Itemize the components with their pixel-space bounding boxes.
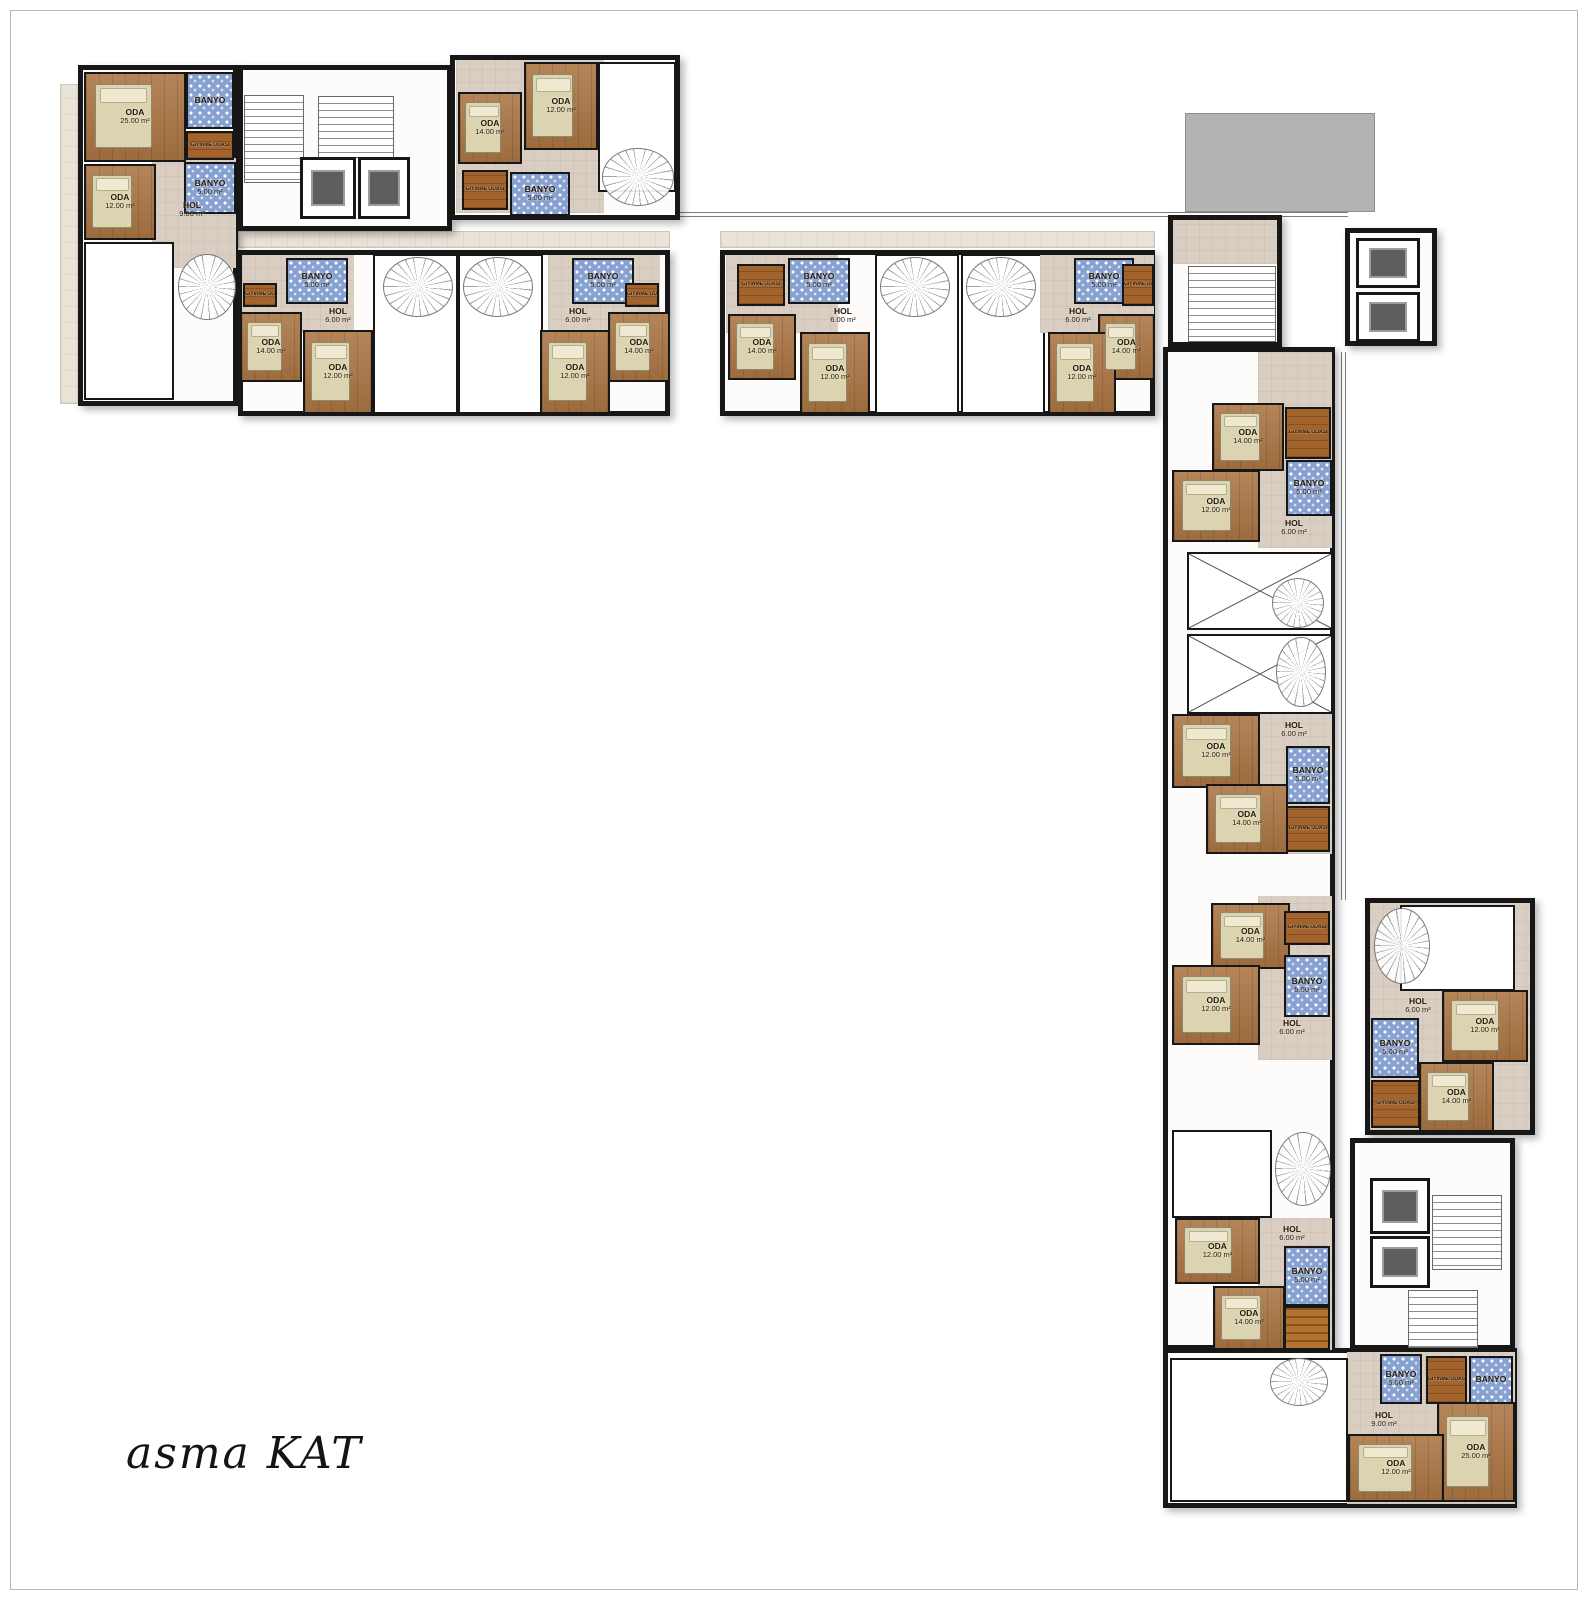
room-banyo: BANYO5.00 m² xyxy=(788,258,850,304)
spiral-stair-icon xyxy=(463,257,533,317)
elevator-car-icon xyxy=(368,170,400,206)
room-label: HOL6.00 m² xyxy=(1388,994,1448,1018)
staircase-icon xyxy=(318,96,394,158)
room-label: BANYO5.00 m² xyxy=(1382,1356,1420,1402)
room-label: BANYO xyxy=(188,74,232,127)
bed-icon xyxy=(311,342,350,402)
room-banyo: BANYO5.00 m² xyxy=(1380,1354,1422,1404)
room-banyo: BANYO5.00 m² xyxy=(510,172,570,216)
spiral-stair-icon xyxy=(1272,578,1324,628)
bed-icon xyxy=(247,322,281,372)
bed-icon xyxy=(1220,413,1260,461)
room-label: BANYO5.00 m² xyxy=(574,260,632,302)
dressing-room: GİYİNME ODASI xyxy=(1285,407,1331,459)
dressing-room: GİYİNME ODASI xyxy=(243,283,277,307)
room-banyo: BANYO5.00 m² xyxy=(1286,746,1330,804)
spiral-stair-icon xyxy=(602,148,674,206)
room-label: HOL6.00 m² xyxy=(813,304,873,328)
room-oda: ODA12.00 m² xyxy=(1172,965,1260,1045)
room-oda: ODA12.00 m² xyxy=(303,330,373,414)
room-oda: ODA12.00 m² xyxy=(524,62,598,150)
bed-icon xyxy=(1182,724,1231,776)
room-oda: ODA14.00 m² xyxy=(1206,784,1288,854)
paving-band-west xyxy=(238,231,670,248)
room-label: BANYO5.00 m² xyxy=(1286,1248,1328,1304)
spiral-stair-icon xyxy=(1374,908,1430,984)
room-oda: ODA12.00 m² xyxy=(1348,1434,1444,1502)
room-label: GİYİNME ODASI xyxy=(739,266,783,304)
room-label: HOL6.00 m² xyxy=(1264,516,1324,540)
terrace-roof xyxy=(1185,113,1375,212)
elevator xyxy=(1370,1236,1430,1288)
bed-icon xyxy=(1427,1072,1469,1122)
room-label: BANYO5.00 m² xyxy=(1373,1020,1417,1076)
room-label: HOL6.00 m² xyxy=(1262,1016,1322,1040)
floor-plan-page: ODA25.00 m²BANYOGİYİNME ODASIBANYO5.00 m… xyxy=(0,0,1588,1600)
staircase-icon xyxy=(1408,1290,1478,1348)
room-oda: ODA12.00 m² xyxy=(800,332,870,414)
room-banyo: BANYO5.00 m² xyxy=(1284,1246,1330,1306)
floor-plan: ODA25.00 m²BANYOGİYİNME ODASIBANYO5.00 m… xyxy=(0,0,1588,1600)
room-oda: ODA12.00 m² xyxy=(1172,470,1260,542)
empty-room xyxy=(84,242,174,400)
dressing-room: GİYİNME ODASI xyxy=(462,170,508,210)
dressing-room: GİYİNME ODASI xyxy=(1286,806,1330,852)
staircase-icon xyxy=(1284,1306,1330,1350)
dressing-room: GİYİNME ODASI xyxy=(186,131,234,160)
room-oda: ODA12.00 m² xyxy=(1175,1218,1260,1284)
room-oda: ODA12.00 m² xyxy=(1172,714,1260,788)
spiral-stair-icon xyxy=(966,257,1036,317)
dressing-room: GİYİNME ODASI xyxy=(625,283,659,307)
room-oda: ODA14.00 m² xyxy=(1211,903,1290,969)
bed-icon xyxy=(615,322,649,372)
room-label: HOL9.00 m² xyxy=(160,198,224,222)
dressing-room: GİYİNME ODASI xyxy=(737,264,785,306)
elevator xyxy=(1356,238,1420,288)
room-banyo: BANYO5.00 m² xyxy=(286,258,348,304)
bed-icon xyxy=(95,84,152,148)
room-label: BANYO xyxy=(1471,1358,1511,1402)
spiral-stair-icon xyxy=(880,257,950,317)
elevator xyxy=(300,157,356,219)
dressing-room: GİYİNME ODASI xyxy=(1284,911,1330,945)
elevator xyxy=(1370,1178,1430,1234)
room-label: GİYİNME ODASI xyxy=(1428,1358,1465,1402)
room-label: HOL6.00 m² xyxy=(1262,1016,1322,1040)
room-banyo: BANYO5.00 m² xyxy=(1371,1018,1419,1078)
room-banyo: BANYO5.00 m² xyxy=(1286,460,1332,516)
bed-icon xyxy=(1056,343,1094,401)
empty-room xyxy=(1172,1130,1272,1218)
room-label: HOL9.00 m² xyxy=(1352,1408,1416,1432)
room-label: HOL6.00 m² xyxy=(548,304,608,328)
room-oda: ODA14.00 m² xyxy=(1212,403,1284,471)
room-label: HOL6.00 m² xyxy=(1264,516,1324,540)
bed-icon xyxy=(1221,1295,1261,1340)
bed-icon xyxy=(1215,794,1261,844)
floor-title: asma KAT xyxy=(126,1428,363,1479)
bed-icon xyxy=(1184,1227,1231,1274)
room-banyo: BANYO xyxy=(1469,1356,1513,1404)
room-label: HOL6.00 m² xyxy=(1262,1222,1322,1246)
bed-icon xyxy=(736,323,774,370)
bed-icon xyxy=(808,343,847,401)
room-label: GİYİNME ODASI xyxy=(1288,808,1328,850)
spiral-stair-icon xyxy=(383,257,453,317)
elevator xyxy=(1356,292,1420,342)
room-label: HOL9.00 m² xyxy=(1352,1408,1416,1432)
spiral-stair-icon xyxy=(1276,637,1326,707)
room-oda: ODA12.00 m² xyxy=(1442,990,1528,1062)
dressing-room: GİYİNME ODASI xyxy=(1426,1356,1467,1404)
room-oda: ODA25.00 m² xyxy=(84,72,186,162)
elevator-car-icon xyxy=(1369,302,1408,332)
room-label: HOL6.00 m² xyxy=(1264,718,1324,742)
room-banyo: BANYO5.00 m² xyxy=(1284,955,1330,1017)
elevator-car-icon xyxy=(311,170,345,206)
room-label: GİYİNME ODASI xyxy=(188,133,232,158)
room-banyo: BANYO xyxy=(186,72,234,129)
dressing-room: GİYİNME ODASI xyxy=(1371,1080,1420,1128)
hall-floor xyxy=(1173,220,1277,264)
room-label: HOL6.00 m² xyxy=(1264,718,1324,742)
bed-icon xyxy=(92,175,132,229)
bed-icon xyxy=(465,102,501,153)
room-label: GİYİNME ODASI xyxy=(464,172,506,208)
elevator-car-icon xyxy=(1369,248,1408,278)
bed-icon xyxy=(1182,976,1231,1033)
room-oda: ODA25.00 m² xyxy=(1437,1402,1515,1502)
bed-icon xyxy=(1358,1444,1412,1492)
room-label: HOL6.00 m² xyxy=(813,304,873,328)
room-label: BANYO5.00 m² xyxy=(512,174,568,214)
room-oda: ODA14.00 m² xyxy=(1213,1286,1285,1350)
room-label: HOL6.00 m² xyxy=(1388,994,1448,1018)
room-oda: ODA12.00 m² xyxy=(84,164,156,240)
room-oda: ODA14.00 m² xyxy=(728,314,796,380)
room-label: HOL9.00 m² xyxy=(160,198,224,222)
room-label: HOL6.00 m² xyxy=(548,304,608,328)
dressing-room: GİYİNME ODASI xyxy=(1122,264,1154,306)
room-label: HOL6.00 m² xyxy=(1262,1222,1322,1246)
elevator-car-icon xyxy=(1382,1190,1418,1223)
bed-icon xyxy=(1182,480,1231,531)
spiral-stair-icon xyxy=(1270,1358,1328,1406)
staircase-icon xyxy=(1188,266,1276,342)
room-label: GİYİNME ODASI xyxy=(627,285,657,305)
room-label: GİYİNME ODASI xyxy=(1124,266,1152,304)
railing-right xyxy=(1341,352,1346,900)
staircase-icon xyxy=(1432,1195,1502,1270)
room-label: BANYO5.00 m² xyxy=(790,260,848,302)
room-label: GİYİNME ODASI xyxy=(1287,409,1329,457)
room-oda: ODA12.00 m² xyxy=(540,330,610,414)
room-label: GİYİNME ODASI xyxy=(245,285,275,305)
room-label: HOL6.00 m² xyxy=(308,304,368,328)
room-oda: ODA14.00 m² xyxy=(1419,1062,1494,1132)
bed-icon xyxy=(1446,1416,1489,1487)
room-label: BANYO5.00 m² xyxy=(1286,957,1328,1015)
room-oda: ODA14.00 m² xyxy=(458,92,522,164)
spiral-stair-icon xyxy=(178,254,236,320)
room-oda: ODA14.00 m² xyxy=(240,312,302,382)
bed-icon xyxy=(1105,323,1137,370)
bed-icon xyxy=(532,74,573,136)
room-label: HOL6.00 m² xyxy=(308,304,368,328)
room-oda: ODA14.00 m² xyxy=(608,312,670,382)
bed-icon xyxy=(1451,1000,1499,1051)
room-label: BANYO5.00 m² xyxy=(1288,748,1328,802)
elevator xyxy=(358,157,410,219)
room-label: GİYİNME ODASI xyxy=(1286,913,1328,943)
elevator-car-icon xyxy=(1382,1247,1418,1278)
bed-icon xyxy=(548,342,587,402)
staircase-icon xyxy=(244,95,304,183)
room-label: BANYO5.00 m² xyxy=(288,260,346,302)
room-label: BANYO5.00 m² xyxy=(1288,462,1330,514)
bed-icon xyxy=(1220,912,1264,959)
paving-band-east xyxy=(720,231,1155,248)
room-label: GİYİNME ODASI xyxy=(1373,1082,1418,1126)
spiral-stair-icon xyxy=(1275,1132,1331,1206)
